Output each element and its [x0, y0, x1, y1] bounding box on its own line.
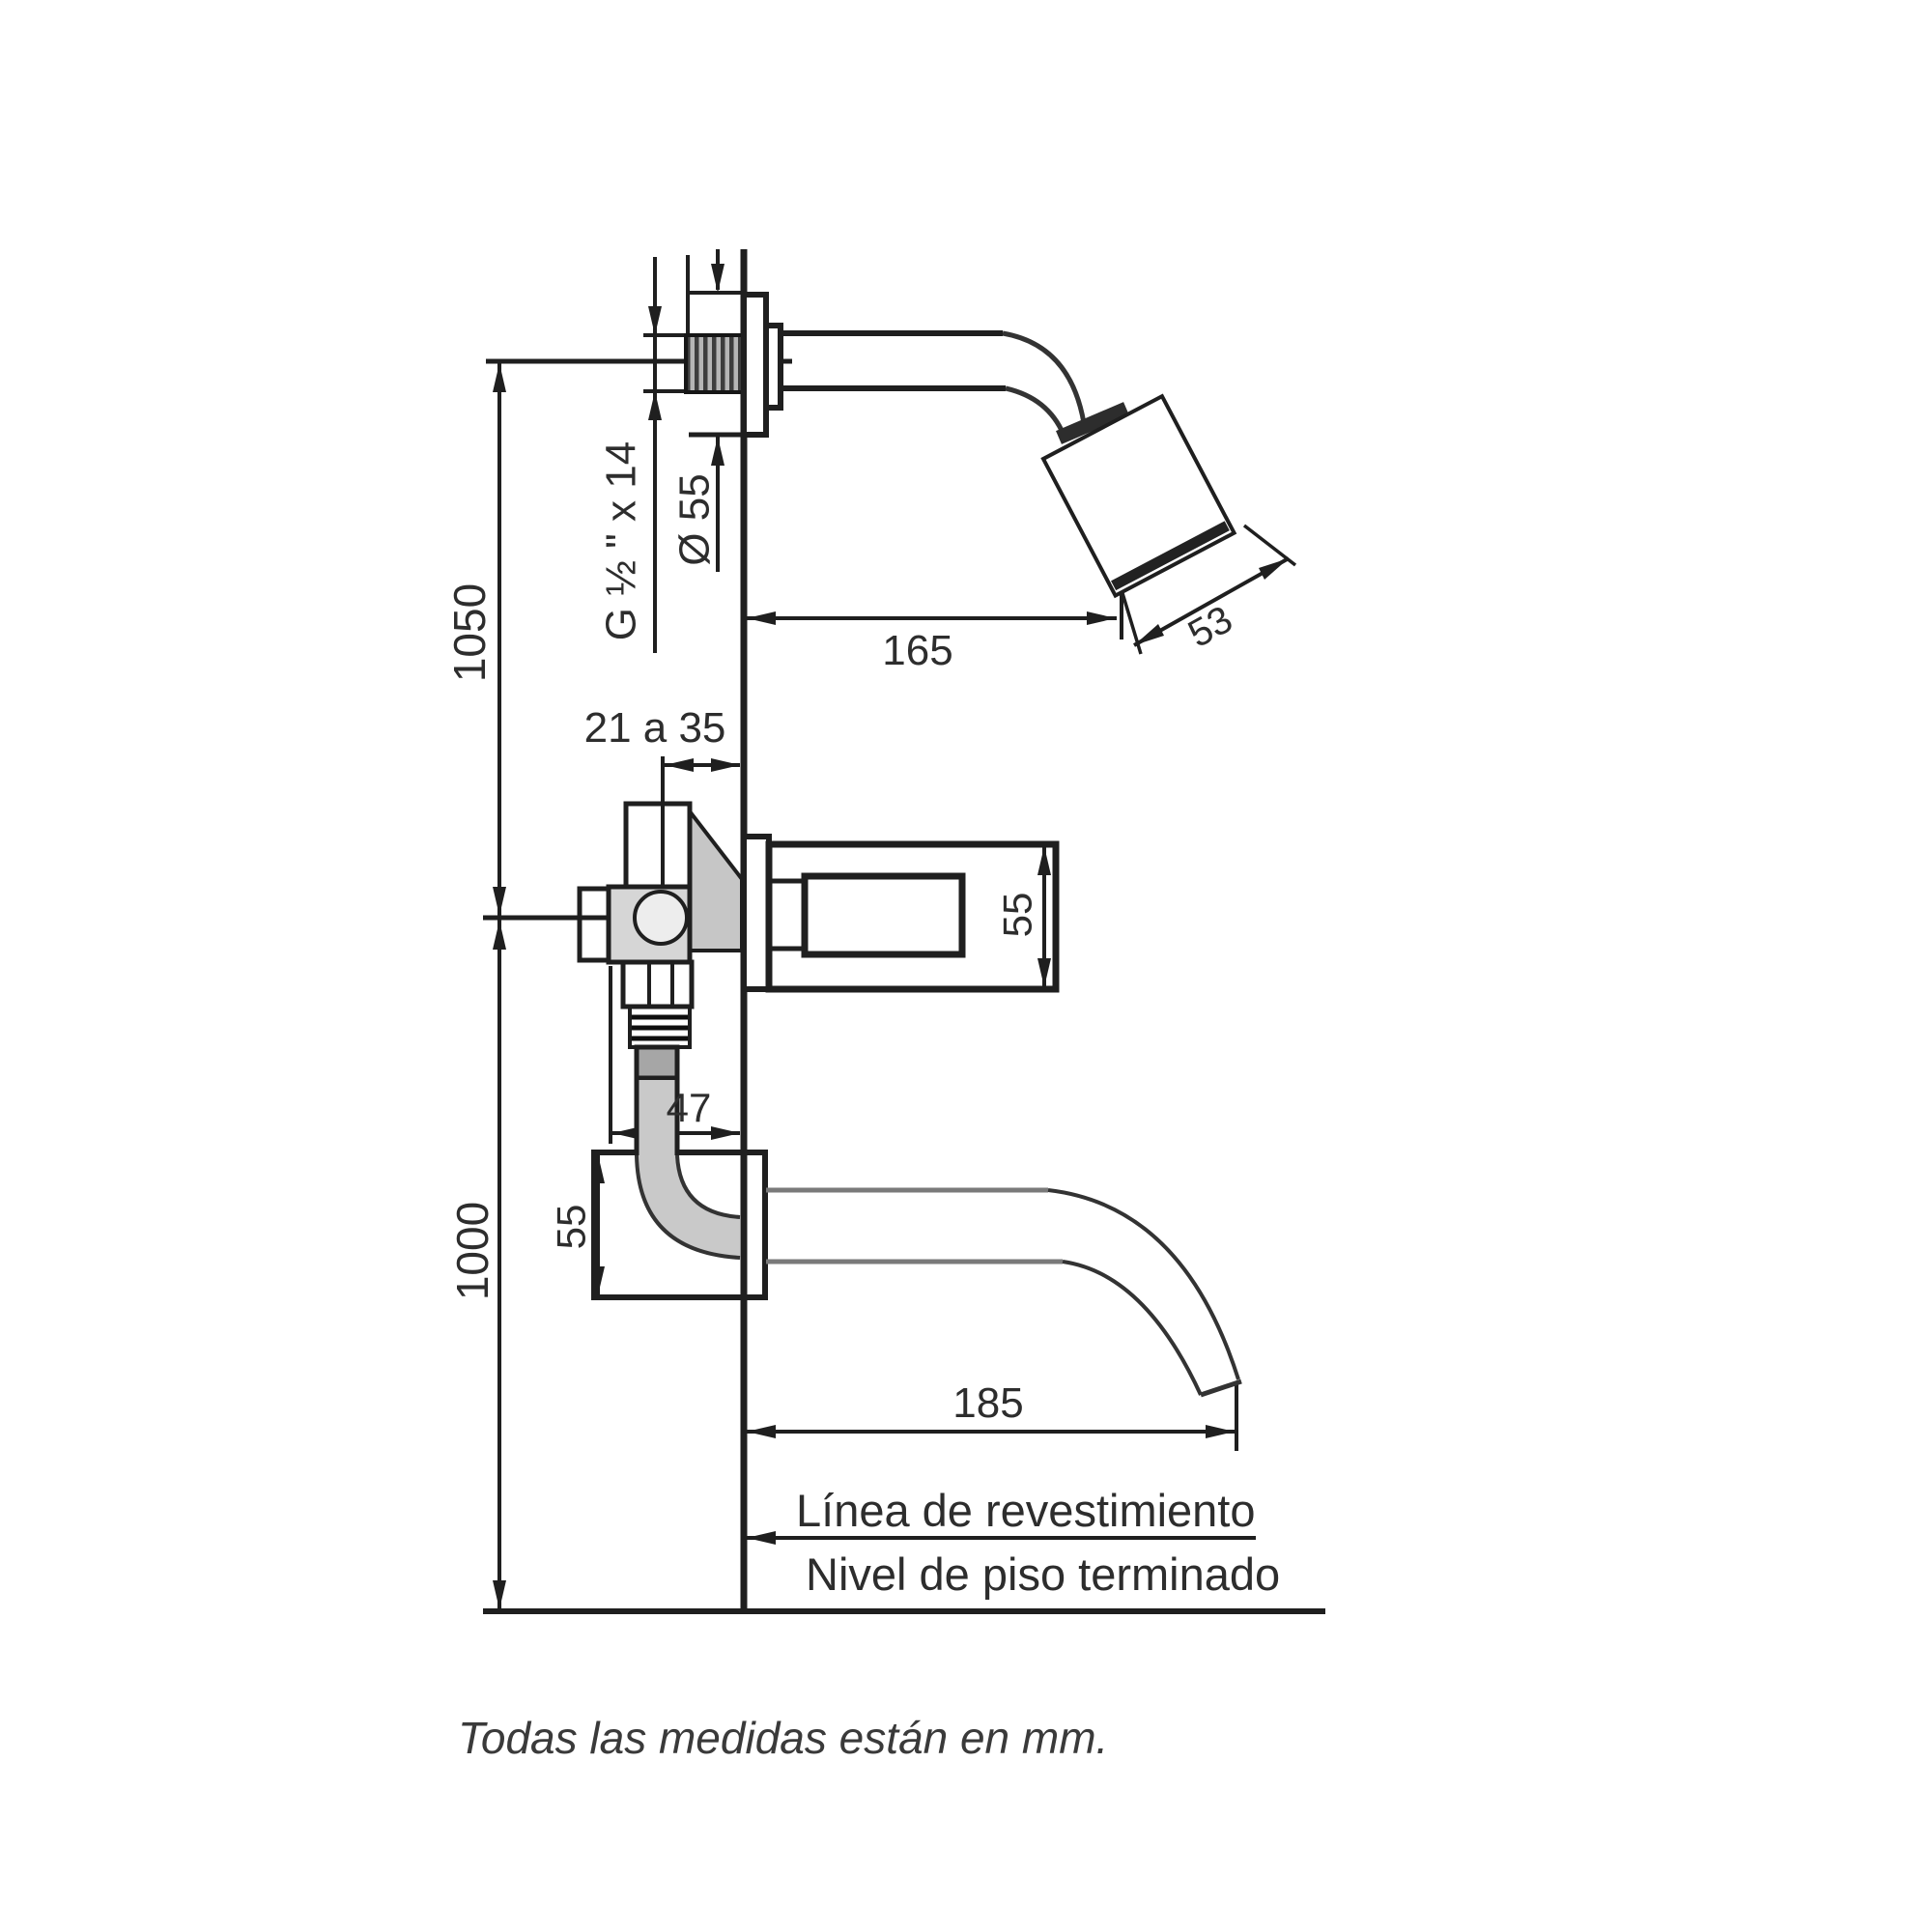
- label-escutcheon-diameter: Ø 55: [671, 473, 719, 565]
- label-valve-offset: 47: [667, 1085, 712, 1130]
- arm-escutcheon-step: [766, 326, 781, 408]
- arrow-165-right: [1087, 611, 1116, 625]
- spout-inner-curve: [1063, 1262, 1201, 1395]
- arm-inner-bend: [1006, 388, 1064, 435]
- arrow-53-left: [1134, 624, 1164, 645]
- valve-stem-circle: [635, 892, 687, 944]
- pipe-stub: [637, 1047, 677, 1078]
- arrow-wall-reference: [747, 1531, 776, 1545]
- arrow-embed-left: [665, 758, 694, 772]
- page: G ½ " x 14 Ø 55 1050 21 a 35 165 53 55 4…: [0, 0, 1932, 1932]
- arrow-1000-bottom: [493, 1580, 506, 1609]
- arrow-1050-bottom: [493, 887, 506, 916]
- label-handle-height: 55: [995, 893, 1040, 938]
- arrow-thread-bottom: [648, 391, 662, 420]
- handle-escutcheon: [744, 837, 769, 989]
- arm-outer-bend: [1003, 333, 1084, 423]
- shower-arm-assembly: [686, 295, 1235, 596]
- arrow-165-left: [747, 611, 776, 625]
- label-spout-reach: 185: [952, 1379, 1023, 1427]
- label-floor-reference: Nivel de piso terminado: [806, 1548, 1280, 1600]
- arrow-185-left: [747, 1425, 776, 1438]
- valve-side-port: [580, 889, 609, 960]
- arrow-d55-bottom: [711, 437, 724, 466]
- arrow-185-right: [1206, 1425, 1235, 1438]
- arrow-thread-top: [648, 306, 662, 335]
- arm-escutcheon: [744, 295, 766, 435]
- spout-assembly: [766, 1190, 1241, 1395]
- elbow-fill: [637, 1155, 740, 1258]
- label-thread-spec: G ½ " x 14: [598, 441, 645, 640]
- arrow-embed-right: [711, 758, 740, 772]
- label-upper-height: 1050: [444, 583, 495, 682]
- arrow-1050-top: [493, 363, 506, 392]
- label-embed-range: 21 a 35: [584, 704, 726, 752]
- installation-diagram: G ½ " x 14 Ø 55 1050 21 a 35 165 53 55 4…: [0, 0, 1932, 1932]
- spout-outer-curve: [1048, 1190, 1238, 1379]
- threaded-nipple: [686, 335, 744, 392]
- label-wall-reference: Línea de revestimiento: [796, 1485, 1256, 1536]
- valve-bonnet: [626, 804, 690, 887]
- arrow-d55-top: [711, 264, 724, 293]
- units-note: Todas las medidas están en mm.: [458, 1713, 1108, 1763]
- label-lower-height: 1000: [447, 1202, 497, 1300]
- valve-tee-behind-wall: [690, 811, 742, 951]
- hex-nut: [623, 962, 692, 1007]
- arrow-47-right: [711, 1126, 740, 1140]
- arrow-53-right: [1259, 558, 1289, 580]
- label-head-face: 53: [1181, 598, 1239, 656]
- label-arm-reach: 165: [882, 627, 952, 674]
- handle-knob: [805, 876, 962, 954]
- arrow-1000-top: [493, 921, 506, 950]
- label-elbow-box-height: 55: [549, 1205, 594, 1250]
